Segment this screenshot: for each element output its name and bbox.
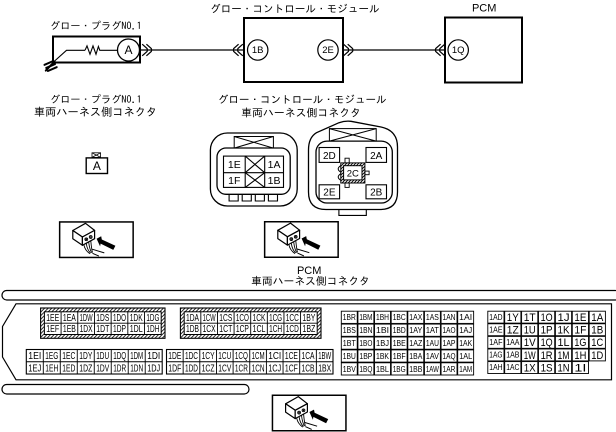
- svg-text:1CZ: 1CZ: [202, 363, 215, 374]
- svg-text:1CS: 1CS: [219, 313, 232, 324]
- svg-text:1CM: 1CM: [252, 351, 265, 362]
- svg-text:PCM: PCM: [472, 2, 496, 14]
- svg-text:1DQ: 1DQ: [113, 351, 126, 362]
- svg-text:1B: 1B: [268, 175, 281, 187]
- svg-text:1CT: 1CT: [219, 324, 232, 335]
- svg-text:1DV: 1DV: [96, 363, 109, 374]
- svg-text:1AX: 1AX: [409, 312, 422, 322]
- svg-text:1M: 1M: [558, 350, 570, 362]
- svg-text:1AW: 1AW: [426, 364, 440, 374]
- svg-text:1DZ: 1DZ: [79, 363, 92, 374]
- svg-text:1AN: 1AN: [443, 312, 456, 322]
- svg-text:1BP: 1BP: [359, 351, 372, 361]
- svg-text:1CV: 1CV: [218, 363, 231, 374]
- svg-text:1G: 1G: [574, 337, 586, 349]
- svg-text:1AG: 1AG: [489, 351, 502, 360]
- svg-text:1A: 1A: [591, 312, 603, 324]
- svg-text:1DN: 1DN: [130, 363, 143, 374]
- svg-text:1AC: 1AC: [506, 363, 519, 372]
- svg-text:1CB: 1CB: [302, 363, 315, 374]
- svg-text:1AS: 1AS: [426, 312, 439, 322]
- svg-text:1AE: 1AE: [489, 325, 502, 334]
- svg-text:1CL: 1CL: [253, 324, 266, 335]
- svg-text:1BC: 1BC: [393, 312, 406, 322]
- svg-text:1DL: 1DL: [130, 324, 143, 335]
- svg-text:1CC: 1CC: [286, 313, 299, 324]
- svg-text:1EA: 1EA: [63, 313, 76, 324]
- svg-text:1BO: 1BO: [359, 338, 372, 348]
- svg-text:1EI: 1EI: [28, 351, 41, 362]
- svg-text:1EE: 1EE: [46, 313, 59, 324]
- svg-text:1BB: 1BB: [409, 364, 422, 374]
- svg-text:1I: 1I: [574, 362, 586, 374]
- svg-text:1CG: 1CG: [269, 313, 282, 324]
- svg-text:1AT: 1AT: [426, 325, 440, 335]
- svg-text:1S: 1S: [541, 362, 553, 374]
- svg-text:1DH: 1DH: [146, 324, 159, 335]
- svg-text:1D: 1D: [591, 350, 603, 362]
- svg-text:1BM: 1BM: [359, 312, 372, 322]
- svg-text:1BE: 1BE: [393, 338, 406, 348]
- svg-text:1BT: 1BT: [343, 338, 357, 348]
- svg-text:1AA: 1AA: [506, 338, 520, 347]
- svg-text:1AL: 1AL: [459, 351, 472, 361]
- svg-text:1BV: 1BV: [343, 364, 356, 374]
- svg-text:1Q: 1Q: [452, 45, 465, 56]
- svg-text:1BL: 1BL: [376, 364, 389, 374]
- svg-text:1DX: 1DX: [80, 324, 93, 335]
- svg-text:1BW: 1BW: [318, 351, 331, 362]
- svg-text:1BG: 1BG: [393, 364, 406, 374]
- svg-text:1DR: 1DR: [113, 363, 126, 374]
- svg-text:1BY: 1BY: [302, 313, 315, 324]
- svg-text:1AV: 1AV: [426, 351, 439, 361]
- svg-text:1AU: 1AU: [426, 338, 439, 348]
- svg-text:1CD: 1CD: [286, 324, 299, 335]
- svg-text:1DT: 1DT: [96, 324, 109, 335]
- svg-text:1AR: 1AR: [443, 364, 456, 374]
- svg-text:1BS: 1BS: [343, 325, 356, 335]
- svg-text:1EF: 1EF: [46, 324, 59, 335]
- svg-text:1BR: 1BR: [343, 312, 356, 322]
- svg-text:A: A: [124, 43, 132, 57]
- svg-text:1R: 1R: [541, 350, 553, 362]
- svg-text:1AH: 1AH: [489, 363, 502, 372]
- svg-text:1ED: 1ED: [62, 363, 75, 374]
- svg-text:1CI: 1CI: [268, 351, 281, 362]
- svg-text:1BF: 1BF: [393, 351, 406, 361]
- svg-text:1DJ: 1DJ: [147, 363, 160, 374]
- svg-text:1X: 1X: [524, 362, 536, 374]
- svg-text:1AY: 1AY: [409, 325, 422, 335]
- svg-text:PCM: PCM: [297, 265, 321, 277]
- svg-text:1AQ: 1AQ: [443, 351, 456, 361]
- svg-text:1Y: 1Y: [507, 312, 519, 324]
- svg-text:2D: 2D: [323, 151, 336, 162]
- svg-text:1Q: 1Q: [541, 337, 553, 349]
- svg-text:1B: 1B: [252, 45, 264, 56]
- svg-text:1EJ: 1EJ: [28, 363, 41, 374]
- svg-text:1K: 1K: [558, 325, 570, 337]
- svg-text:1DY: 1DY: [79, 351, 92, 362]
- svg-text:1CU: 1CU: [218, 351, 231, 362]
- svg-text:1CF: 1CF: [285, 363, 298, 374]
- svg-text:1T: 1T: [524, 312, 536, 324]
- svg-text:1AJ: 1AJ: [459, 325, 472, 335]
- svg-text:1EC: 1EC: [62, 351, 75, 362]
- svg-text:1H: 1H: [574, 350, 586, 362]
- svg-text:1V: 1V: [524, 337, 536, 349]
- svg-text:1EB: 1EB: [63, 324, 76, 335]
- svg-text:1BU: 1BU: [343, 351, 356, 361]
- svg-text:1CP: 1CP: [236, 324, 249, 335]
- svg-text:1W: 1W: [524, 350, 536, 362]
- svg-text:1B: 1B: [591, 325, 603, 337]
- svg-text:1BX: 1BX: [318, 363, 331, 374]
- svg-text:1BD: 1BD: [393, 325, 406, 335]
- svg-text:1C: 1C: [591, 337, 603, 349]
- svg-text:1BJ: 1BJ: [376, 338, 389, 348]
- svg-text:1DW: 1DW: [80, 313, 93, 324]
- svg-text:1F: 1F: [574, 325, 586, 337]
- svg-text:1AD: 1AD: [489, 313, 502, 322]
- svg-text:1Z: 1Z: [507, 325, 519, 337]
- svg-text:1EG: 1EG: [45, 351, 58, 362]
- svg-text:1DO: 1DO: [113, 313, 126, 324]
- svg-text:1CK: 1CK: [253, 313, 266, 324]
- svg-text:1BQ: 1BQ: [359, 364, 372, 374]
- svg-text:1CH: 1CH: [269, 324, 282, 335]
- svg-text:1CW: 1CW: [203, 313, 216, 324]
- svg-text:1DF: 1DF: [168, 363, 181, 374]
- svg-text:1EH: 1EH: [45, 363, 58, 374]
- svg-text:1BA: 1BA: [409, 351, 422, 361]
- svg-text:1CR: 1CR: [235, 363, 248, 374]
- svg-text:1DC: 1DC: [185, 351, 198, 362]
- svg-text:1CQ: 1CQ: [235, 351, 248, 362]
- svg-text:1J: 1J: [558, 312, 570, 324]
- svg-text:1DU: 1DU: [96, 351, 109, 362]
- svg-text:1E: 1E: [228, 159, 241, 171]
- svg-text:1AF: 1AF: [489, 338, 502, 347]
- svg-text:1DS: 1DS: [96, 313, 109, 324]
- svg-text:1U: 1U: [524, 325, 536, 337]
- svg-text:1DG: 1DG: [146, 313, 159, 324]
- svg-text:A: A: [93, 159, 101, 173]
- svg-text:1CA: 1CA: [302, 351, 315, 362]
- svg-text:1A: 1A: [268, 159, 281, 171]
- svg-text:2E: 2E: [323, 188, 336, 199]
- svg-text:1CO: 1CO: [236, 313, 249, 324]
- svg-text:1DM: 1DM: [130, 351, 143, 362]
- svg-text:1BH: 1BH: [376, 312, 389, 322]
- svg-text:1E: 1E: [574, 312, 586, 324]
- svg-text:1DA: 1DA: [186, 313, 199, 324]
- svg-text:1BK: 1BK: [376, 351, 389, 361]
- svg-text:1DE: 1DE: [168, 351, 181, 362]
- svg-text:1BN: 1BN: [359, 325, 372, 335]
- svg-text:1AP: 1AP: [443, 338, 456, 348]
- svg-text:1N: 1N: [558, 362, 570, 374]
- svg-text:1AI: 1AI: [459, 312, 472, 322]
- svg-text:1AO: 1AO: [443, 325, 456, 335]
- svg-text:1CJ: 1CJ: [268, 363, 281, 374]
- svg-text:1BI: 1BI: [376, 325, 389, 335]
- svg-text:2B: 2B: [370, 188, 383, 199]
- svg-text:1CY: 1CY: [202, 351, 215, 362]
- svg-text:1AB: 1AB: [506, 351, 519, 360]
- svg-text:1CE: 1CE: [285, 351, 298, 362]
- svg-text:1DD: 1DD: [185, 363, 198, 374]
- svg-text:1L: 1L: [558, 337, 570, 349]
- svg-text:1DP: 1DP: [113, 324, 126, 335]
- svg-text:1CX: 1CX: [203, 324, 216, 335]
- svg-text:2C: 2C: [347, 168, 359, 179]
- svg-text:1CN: 1CN: [252, 363, 265, 374]
- svg-text:1DB: 1DB: [186, 324, 199, 335]
- svg-text:2A: 2A: [370, 151, 383, 162]
- svg-text:1O: 1O: [541, 312, 553, 324]
- svg-text:1AK: 1AK: [459, 338, 472, 348]
- svg-text:2E: 2E: [322, 45, 334, 56]
- svg-text:1AZ: 1AZ: [409, 338, 422, 348]
- svg-text:1DI: 1DI: [147, 351, 160, 362]
- svg-text:1F: 1F: [228, 175, 240, 187]
- svg-text:1BZ: 1BZ: [302, 324, 315, 335]
- svg-text:1P: 1P: [541, 325, 553, 337]
- svg-text:1DK: 1DK: [130, 313, 143, 324]
- svg-text:1AM: 1AM: [459, 364, 472, 374]
